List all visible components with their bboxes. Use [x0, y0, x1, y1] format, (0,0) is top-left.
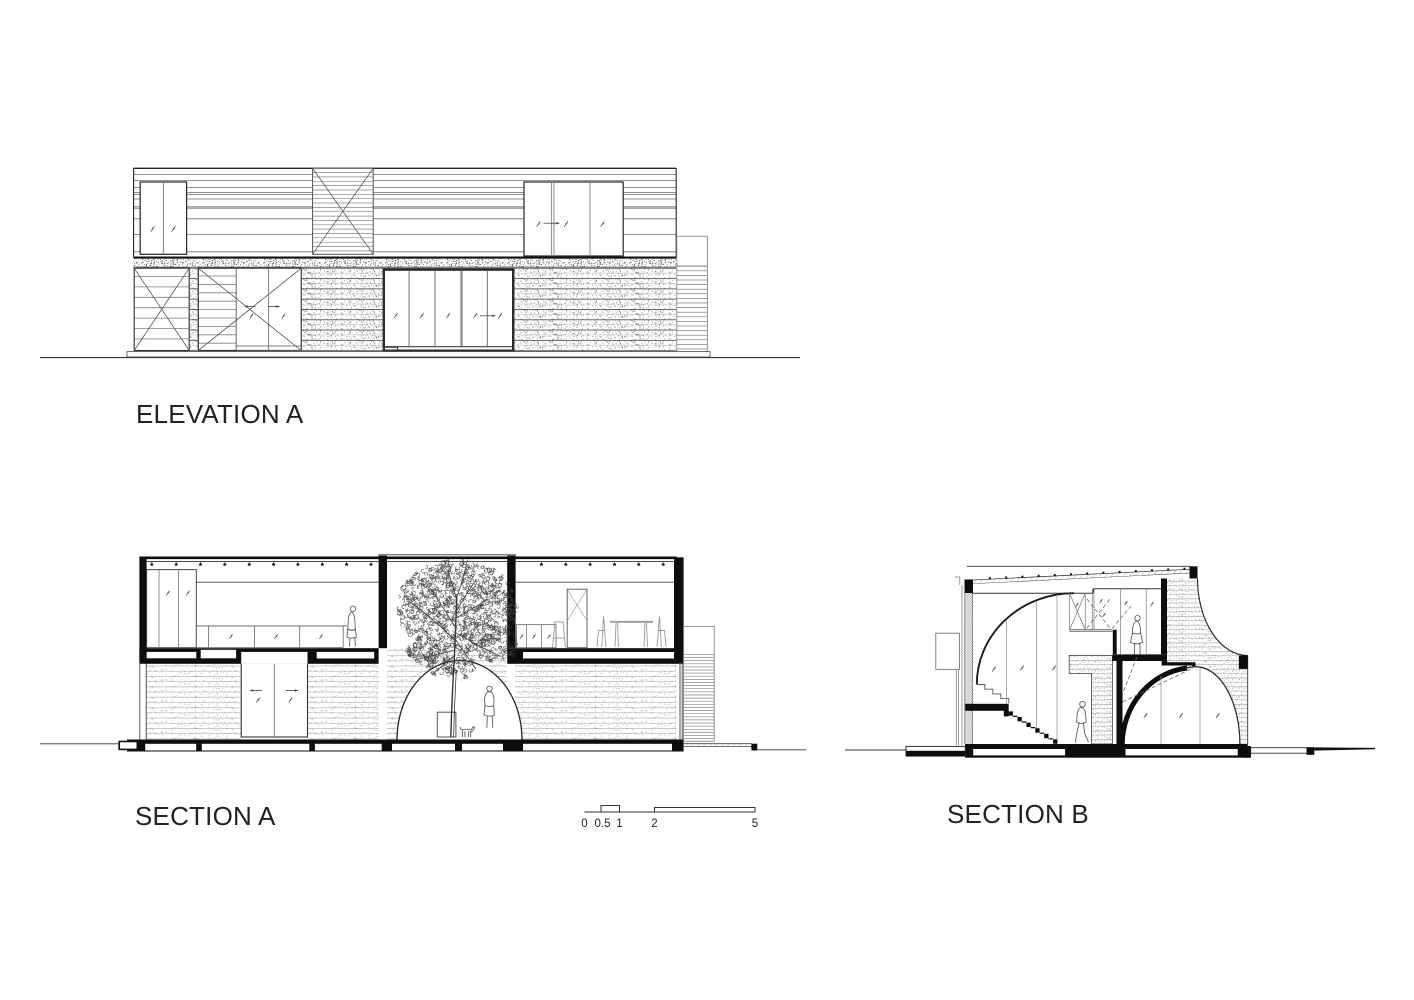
svg-text:5: 5: [752, 818, 758, 830]
svg-text:SECTION A: SECTION A: [135, 801, 276, 831]
svg-text:SECTION B: SECTION B: [947, 799, 1089, 829]
svg-text:1: 1: [616, 818, 622, 830]
svg-text:0.5: 0.5: [595, 818, 611, 830]
svg-text:0: 0: [581, 818, 587, 830]
svg-text:ELEVATION A: ELEVATION A: [136, 399, 304, 429]
svg-text:2: 2: [651, 818, 657, 830]
